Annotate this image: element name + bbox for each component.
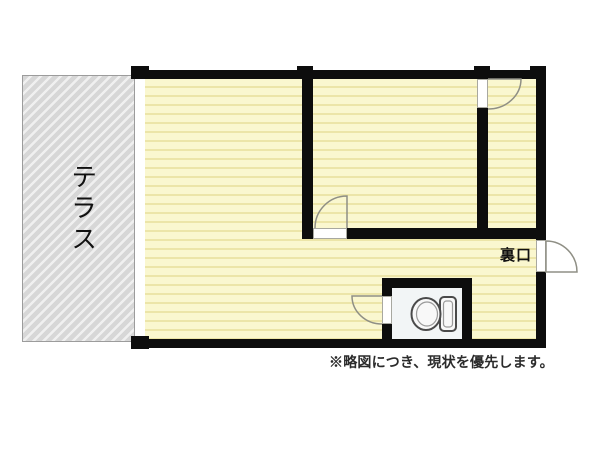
wall-toilet-top [382, 278, 472, 288]
pillar-top-left [131, 66, 149, 79]
pillar-top-mid2 [474, 66, 490, 79]
wall-toilet-left-lower [382, 324, 392, 348]
pillar-bottom-left [131, 336, 149, 349]
floor-plan: テラス 裏口 ※略図につき、現状を優先します。 [0, 0, 600, 450]
wall-interior-vertical-2 [477, 108, 488, 239]
wall-right-lower [536, 272, 546, 348]
door-opening-toilet [382, 296, 392, 324]
wall-toilet-right [462, 278, 472, 348]
door-opening-back [536, 240, 546, 272]
back-door-label: 裏口 [500, 244, 532, 265]
pillar-top-right [530, 66, 546, 79]
terrace-label: テラス [68, 163, 97, 256]
wall-right-upper [536, 70, 546, 240]
back-door-swing [546, 241, 577, 272]
wall-toilet-left-upper [382, 278, 392, 296]
wall-interior-horizontal [347, 228, 546, 239]
disclaimer-note: ※略図につき、現状を優先します。 [329, 352, 554, 372]
wall-interior-vertical-1 [302, 79, 313, 239]
door-opening-middle-room [313, 228, 347, 239]
pillar-top-mid1 [297, 66, 313, 79]
wall-bottom [133, 339, 546, 348]
door-opening-right-room [477, 79, 488, 108]
toilet-room-floor [392, 288, 462, 339]
